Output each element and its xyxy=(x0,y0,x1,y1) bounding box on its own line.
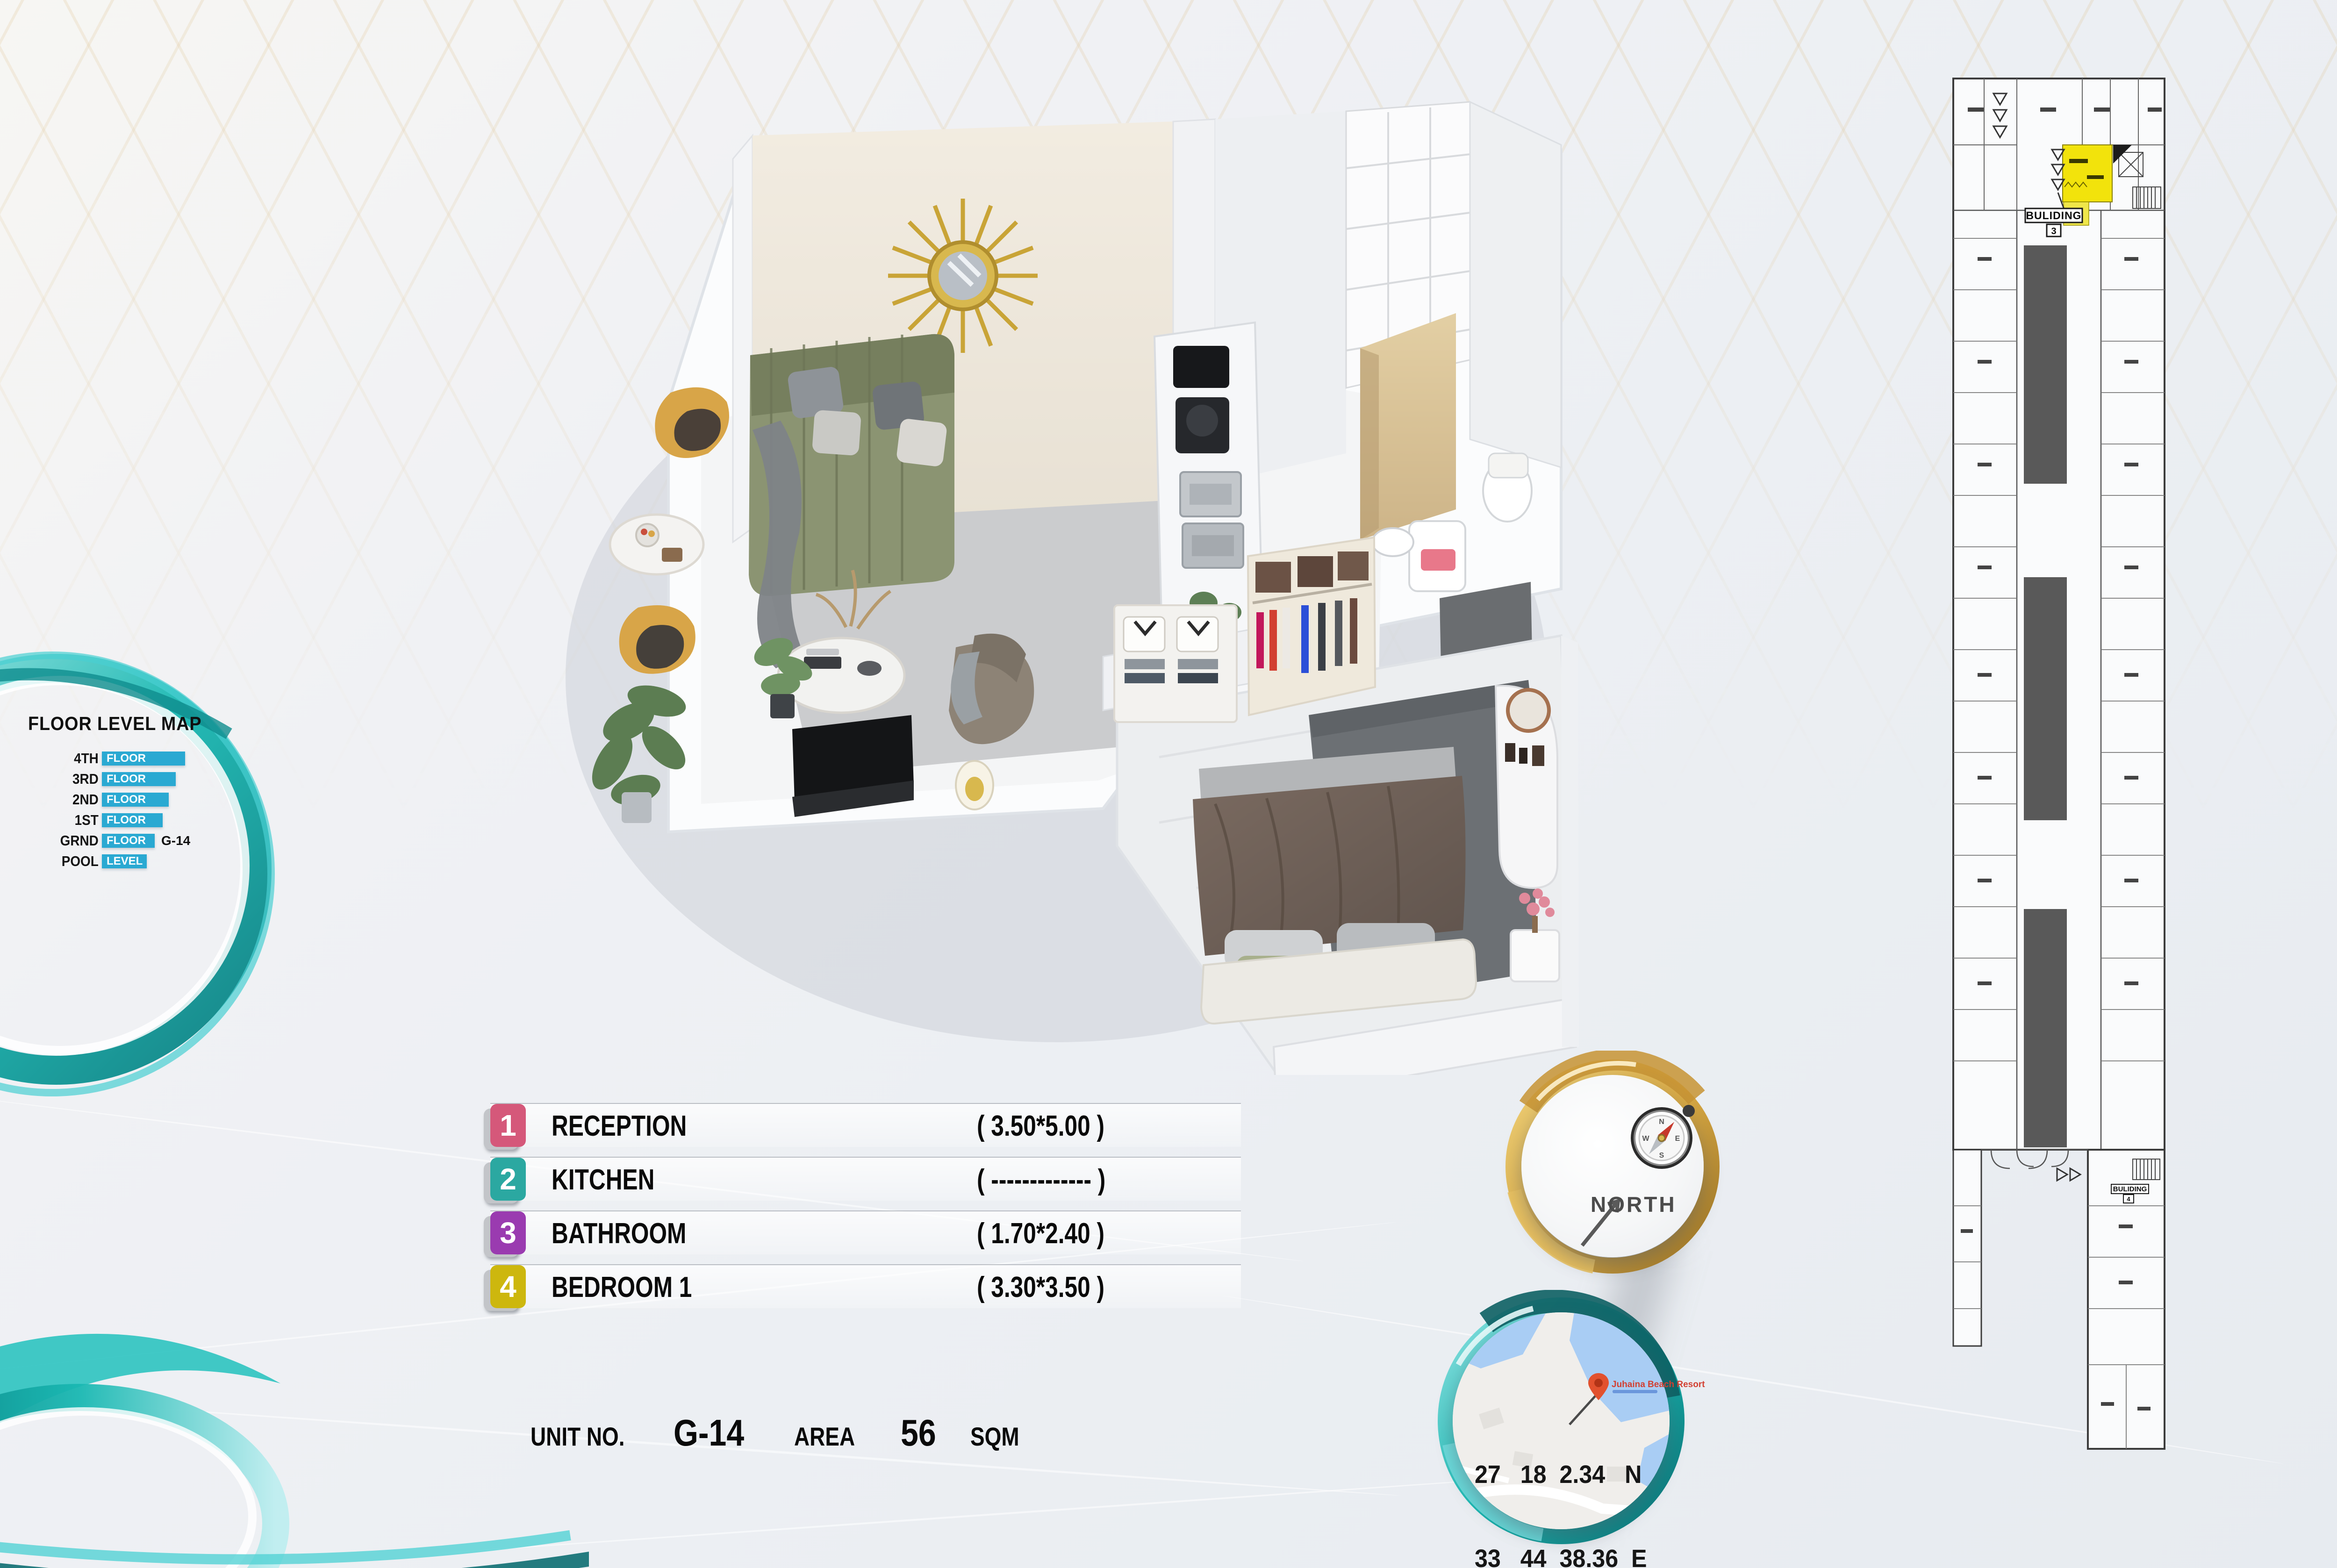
courtyard-2 xyxy=(2024,577,2067,820)
poster-canvas: FLOOR LEVEL MAP 4TH FLOOR 3RD FLOOR 2ND … xyxy=(0,0,2337,1568)
legend-row-bedroom: 4 BEDROOM 1 ( 3.30*3.50 ) xyxy=(484,1264,1241,1308)
room-dimensions: ( 3.30*3.50 ) xyxy=(977,1271,1104,1304)
current-unit-note: G-14 xyxy=(161,833,190,848)
entrance-doors xyxy=(1981,1150,2088,1168)
room-name: BATHROOM xyxy=(552,1217,686,1250)
svg-text:4: 4 xyxy=(2127,1196,2130,1203)
map-coordinates: 27 18 2.34 N 33 44 38.36 E xyxy=(1475,1404,1647,1568)
compass-rose-icon: N E S W xyxy=(1631,1105,1695,1169)
closet-shelf xyxy=(1114,605,1237,722)
floor-level-bar: FLOOR xyxy=(102,834,155,848)
svg-text:BULIDING: BULIDING xyxy=(2113,1185,2147,1193)
room-name: KITCHEN xyxy=(552,1163,654,1196)
bed xyxy=(1193,747,1476,1024)
unit-no-label: UNIT NO. xyxy=(530,1421,625,1452)
floor-level-map: FLOOR LEVEL MAP 4TH FLOOR 3RD FLOOR 2ND … xyxy=(28,713,290,870)
room-number-badge: 4 xyxy=(490,1265,526,1308)
floor-level-row: 1ST FLOOR xyxy=(28,811,290,829)
unit-no-value: G-14 xyxy=(674,1411,744,1454)
floor-level-map-title: FLOOR LEVEL MAP xyxy=(28,713,269,735)
room-dimensions: ( 1.70*2.40 ) xyxy=(977,1217,1104,1250)
floor-level-row: 4TH FLOOR xyxy=(28,750,290,767)
area-unit: SQM xyxy=(970,1421,1019,1452)
legend-row-reception: 1 RECEPTION ( 3.50*5.00 ) xyxy=(484,1103,1241,1147)
north-label: NORTH xyxy=(1591,1192,1677,1217)
coords-line-1: 27 18 2.34 N xyxy=(1475,1461,1647,1489)
coords-line-2: 33 44 38.36 E xyxy=(1475,1545,1647,1568)
bottom-left-wing xyxy=(1953,1150,1981,1346)
svg-text:E: E xyxy=(1675,1135,1680,1143)
svg-text:W: W xyxy=(1642,1135,1649,1143)
room-name: BEDROOM 1 xyxy=(552,1271,692,1304)
area-value: 56 xyxy=(901,1411,936,1454)
courtyard-3 xyxy=(2024,909,2067,1147)
bedroom-east-wall xyxy=(1561,636,1579,1047)
svg-text:N: N xyxy=(1659,1118,1664,1126)
unit-info: UNIT NO. G-14 AREA 56 SQM xyxy=(530,1411,1030,1454)
svg-text:S: S xyxy=(1659,1152,1664,1160)
floor-level-bar: LEVEL xyxy=(102,854,147,868)
courtyard-1 xyxy=(2024,245,2067,484)
area-label: AREA xyxy=(794,1421,855,1452)
building-key-plan: BULIDING 3 xyxy=(1947,70,2176,1463)
floor-level-row: POOL LEVEL xyxy=(28,852,290,870)
svg-text:BULIDING: BULIDING xyxy=(2026,209,2081,222)
room-dimensions: ( ------------- ) xyxy=(977,1163,1105,1196)
sunburst-mirror xyxy=(888,199,1038,353)
floor-level-bar: FLOOR xyxy=(102,752,185,766)
room-number-badge: 1 xyxy=(490,1104,526,1147)
floor-level-bar: FLOOR xyxy=(102,772,176,786)
map-pin-sublabel-line xyxy=(1613,1390,1657,1393)
floor-level-row: GRND FLOOR G-14 xyxy=(28,832,290,850)
floor-level-row: 3RD FLOOR xyxy=(28,770,290,788)
floor-lamp xyxy=(956,761,993,809)
room-name: RECEPTION xyxy=(552,1110,687,1143)
right-chevrons xyxy=(2057,1168,2080,1181)
apartment-3d-render xyxy=(552,93,1580,1075)
compass-face: N E S W xyxy=(1521,1075,1704,1257)
tv-console xyxy=(792,715,914,817)
room-legend: 1 RECEPTION ( 3.50*5.00 ) 2 KITCHEN ( --… xyxy=(484,1103,1241,1318)
room-number-badge: 2 xyxy=(490,1158,526,1201)
wardrobe xyxy=(1248,537,1375,715)
floor-level-bar: FLOOR xyxy=(102,813,163,827)
floor-level-row: 2ND FLOOR xyxy=(28,791,290,809)
room-number-badge: 3 xyxy=(490,1211,526,1254)
floor-level-bar: FLOOR xyxy=(102,793,169,807)
legend-row-kitchen: 2 KITCHEN ( ------------- ) xyxy=(484,1157,1241,1201)
map-pin-label: Juhaina Beach Resort xyxy=(1612,1380,1705,1390)
room-dimensions: ( 3.50*5.00 ) xyxy=(977,1110,1104,1143)
compass-badge: N E S W NORTH xyxy=(1521,1075,1704,1257)
svg-text:3: 3 xyxy=(2051,226,2056,236)
legend-row-bathroom: 3 BATHROOM ( 1.70*2.40 ) xyxy=(484,1210,1241,1254)
map-pin-icon xyxy=(1588,1373,1609,1403)
